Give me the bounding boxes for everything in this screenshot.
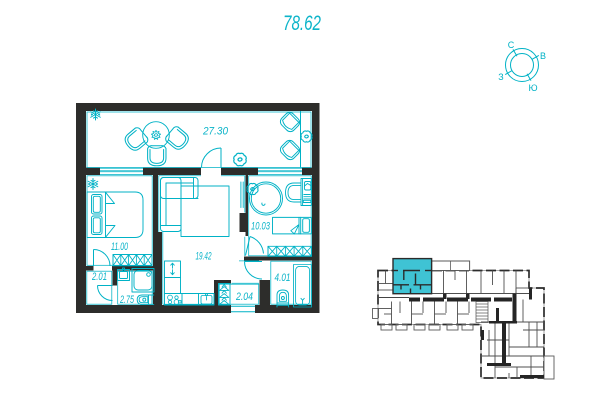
svg-text:78.62: 78.62 [283,12,321,35]
svg-text:С: С [508,40,515,50]
svg-text:4.01: 4.01 [275,272,291,284]
svg-text:10.03: 10.03 [251,221,271,233]
svg-text:З: З [498,72,503,82]
svg-text:2.01: 2.01 [91,271,107,283]
svg-text:2.75: 2.75 [119,294,134,306]
svg-text:В: В [540,51,546,61]
svg-text:Ю: Ю [528,83,537,93]
svg-text:2.04: 2.04 [235,291,253,303]
svg-text:19.42: 19.42 [196,251,212,263]
svg-text:11.00: 11.00 [111,241,129,253]
svg-text:27.30: 27.30 [202,126,229,138]
